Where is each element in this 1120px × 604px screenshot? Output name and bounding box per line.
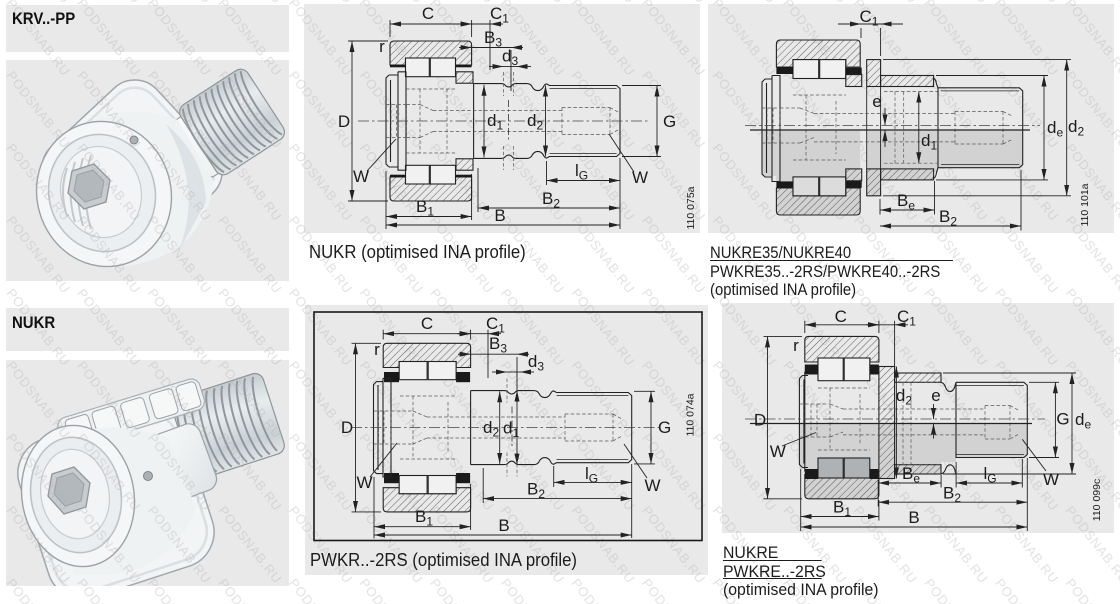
svg-text:110 101a: 110 101a bbox=[1079, 183, 1091, 226]
svg-text:B: B bbox=[908, 508, 919, 527]
svg-text:D: D bbox=[338, 112, 350, 131]
svg-text:D: D bbox=[341, 418, 353, 437]
svg-text:B2: B2 bbox=[939, 207, 957, 229]
svg-text:W: W bbox=[770, 442, 786, 461]
svg-text:B: B bbox=[498, 516, 509, 535]
svg-text:C: C bbox=[835, 307, 847, 326]
svg-text:G: G bbox=[1056, 410, 1069, 429]
svg-text:lG: lG bbox=[585, 464, 598, 486]
svg-text:C1: C1 bbox=[897, 307, 916, 329]
svg-text:e: e bbox=[872, 92, 881, 111]
svg-text:B2: B2 bbox=[527, 480, 545, 502]
svg-text:d2: d2 bbox=[896, 386, 912, 408]
svg-text:G: G bbox=[663, 112, 676, 131]
svg-text:d3: d3 bbox=[502, 47, 518, 69]
svg-text:r: r bbox=[379, 37, 385, 56]
svg-text:W: W bbox=[353, 167, 369, 186]
svg-text:110 099c: 110 099c bbox=[1091, 479, 1103, 521]
svg-text:B1: B1 bbox=[833, 498, 851, 520]
svg-text:d1: d1 bbox=[487, 111, 503, 133]
svg-text:de: de bbox=[1047, 118, 1063, 140]
svg-text:r: r bbox=[793, 336, 799, 355]
svg-text:B2: B2 bbox=[943, 484, 961, 506]
svg-text:G: G bbox=[658, 418, 671, 437]
svg-text:d2: d2 bbox=[483, 418, 499, 440]
svg-text:W: W bbox=[1043, 470, 1059, 489]
svg-text:C: C bbox=[422, 4, 434, 23]
svg-text:lG: lG bbox=[983, 464, 996, 486]
svg-text:B2: B2 bbox=[542, 189, 560, 211]
svg-text:B3: B3 bbox=[489, 334, 507, 356]
svg-text:lG: lG bbox=[575, 161, 588, 183]
svg-text:e: e bbox=[931, 386, 940, 405]
svg-text:D: D bbox=[754, 411, 766, 430]
svg-text:110 074a: 110 074a bbox=[685, 393, 697, 436]
svg-text:W: W bbox=[632, 168, 648, 187]
svg-text:C1: C1 bbox=[860, 7, 879, 29]
svg-text:110 075a: 110 075a bbox=[685, 186, 697, 229]
svg-text:Be: Be bbox=[897, 191, 915, 213]
svg-text:d2: d2 bbox=[1068, 117, 1084, 139]
svg-text:B: B bbox=[494, 206, 505, 225]
svg-text:C: C bbox=[421, 314, 433, 333]
svg-text:W: W bbox=[356, 473, 372, 492]
svg-text:r: r bbox=[374, 340, 380, 359]
svg-text:d3: d3 bbox=[528, 352, 544, 374]
svg-text:d2: d2 bbox=[527, 111, 543, 133]
svg-text:B3: B3 bbox=[484, 28, 502, 50]
svg-text:C1: C1 bbox=[490, 4, 509, 26]
svg-text:W: W bbox=[644, 476, 660, 495]
svg-text:de: de bbox=[1075, 410, 1091, 432]
svg-text:C1: C1 bbox=[486, 314, 505, 336]
